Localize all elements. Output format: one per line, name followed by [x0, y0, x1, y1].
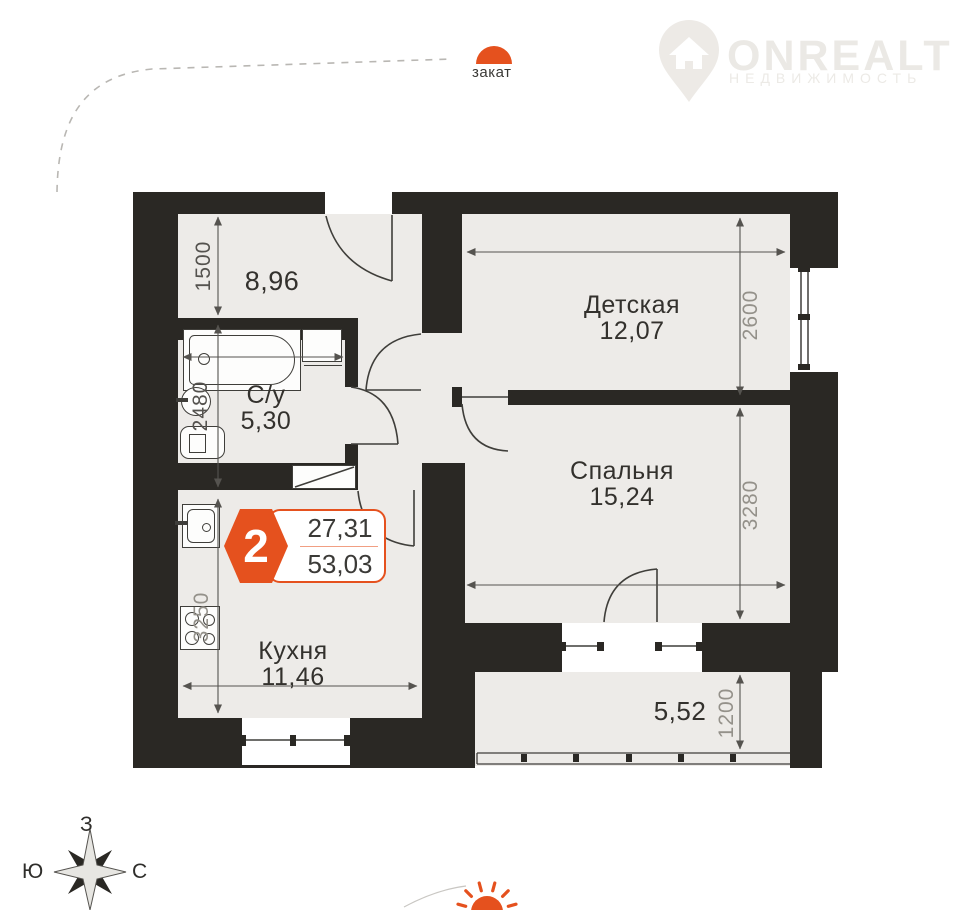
kids-door-arc: [366, 334, 421, 390]
dim-label-kids: 2600: [739, 270, 763, 360]
window-tick: [798, 364, 810, 370]
sunrise-sun-icon: [440, 860, 540, 910]
glazing-tick: [678, 754, 684, 762]
plan-linework: [0, 0, 960, 910]
bedroom-area: 15,24: [552, 484, 692, 510]
glazing-tick: [573, 754, 579, 762]
dim-label-bathroom: 2480: [189, 361, 213, 451]
sun-path-dashed: [57, 59, 452, 192]
window-tick: [559, 642, 566, 651]
kitchen-area: 11,46: [223, 664, 363, 690]
dim-label-kitchen: 3250: [190, 572, 214, 662]
room-label-bedroom: Спальня 15,24: [552, 458, 692, 510]
total-area-value: 53,03: [270, 547, 384, 582]
compass-north: С: [132, 860, 147, 884]
compass-west: З: [80, 813, 93, 837]
hall-area: 8,96: [245, 266, 300, 296]
balcony-door-arc: [604, 569, 657, 622]
dim-label-bedroom: 3280: [739, 460, 763, 550]
window-tick: [798, 314, 810, 320]
room-label-kitchen: Кухня 11,46: [223, 638, 363, 690]
window-tick: [655, 642, 662, 651]
glazing-tick: [626, 754, 632, 762]
room-label-balcony: 5,52: [640, 698, 720, 724]
compass-south: Ю: [22, 860, 43, 884]
room-label-hall: 8,96: [232, 268, 312, 294]
window-tick: [290, 735, 296, 746]
bathroom-name: С/у: [216, 382, 316, 408]
bath-door-arc: [351, 387, 398, 444]
window-tick: [240, 735, 246, 746]
entrance-door-arc: [326, 216, 392, 281]
living-area-value: 27,31: [270, 511, 384, 546]
sunset-label: закат: [472, 64, 512, 81]
compass-star: [54, 829, 126, 910]
dim-label-hall: 1500: [192, 221, 216, 311]
glazing-tick: [521, 754, 527, 762]
kids-area: 12,07: [562, 318, 702, 344]
window-tick: [344, 735, 350, 746]
closet-diagonal: [295, 467, 354, 487]
room-label-bathroom: С/у 5,30: [216, 382, 316, 434]
bedroom-name: Спальня: [552, 458, 692, 484]
window-tick: [696, 642, 703, 651]
area-divider: [300, 546, 378, 547]
dim-label-balcony: 1200: [715, 668, 739, 758]
room-label-kids: Детская 12,07: [562, 292, 702, 344]
window-tick: [597, 642, 604, 651]
kitchen-name: Кухня: [223, 638, 363, 664]
balcony-area: 5,52: [654, 696, 707, 726]
bathroom-area: 5,30: [216, 408, 316, 434]
bedroom-door-arc: [462, 404, 508, 451]
rooms-count: 2: [243, 519, 269, 573]
kids-name: Детская: [562, 292, 702, 318]
window-tick: [798, 266, 810, 272]
